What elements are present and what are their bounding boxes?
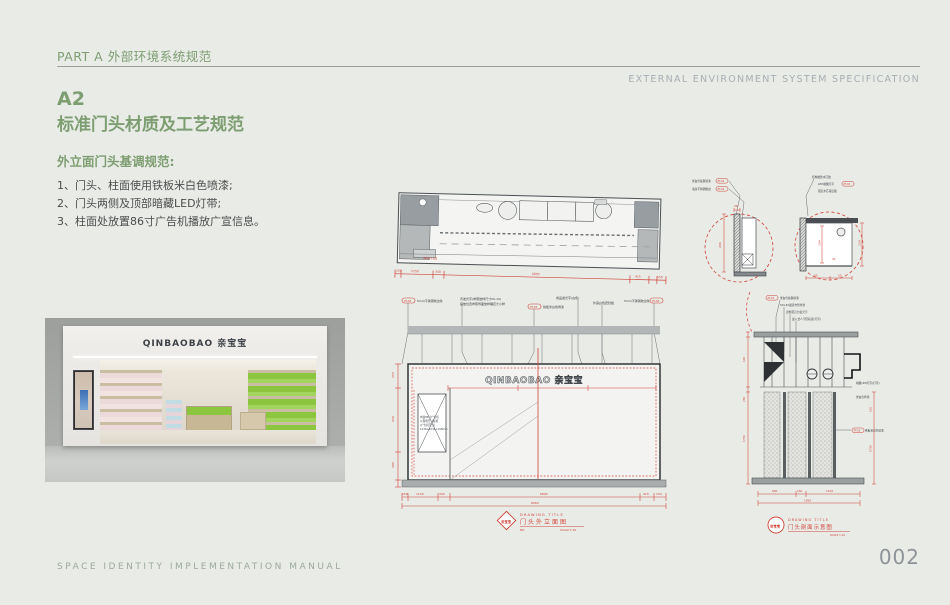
plan-dim: 340 <box>435 270 441 274</box>
annotation-label: 结构胶防水打胶 <box>812 175 831 179</box>
annotation-label: 摆放位置参照饰面放样确定大小样 <box>460 301 505 306</box>
elev-dim: 415 <box>643 492 649 496</box>
material-tag: PT-03 <box>718 188 725 191</box>
clothing-rack <box>166 400 182 430</box>
led-glow <box>73 356 317 358</box>
ad-note-line: (广告机尺寸) <box>420 423 435 427</box>
elev-dim: 250 <box>391 372 395 378</box>
section-brace <box>764 342 784 362</box>
plan-drawing: MW-100 150 1150 340 6805 415 150 <box>388 182 676 288</box>
annotation-label: 米白色氟碳喷漆 <box>692 179 711 183</box>
detail-dim: 200 <box>718 242 722 248</box>
detail-left-annotations: 米白色氟碳喷漆 PT-03 墙身不锈钢收边 PT-03 <box>692 179 744 219</box>
section-dim: 1750 <box>742 435 746 442</box>
annotation-label: LED暗藏灯带 <box>818 182 834 186</box>
drawing-title-en: DRAWING TITLE <box>520 513 564 517</box>
plan-dim: 6805 <box>532 272 540 276</box>
annotation-label: 暗藏LED灯带(灯带) <box>856 381 880 385</box>
annotation-label: 米白色烤漆 <box>856 395 870 399</box>
left-shelving <box>100 370 162 430</box>
drawing-no: NO. <box>520 528 525 532</box>
mall-floor <box>45 446 345 482</box>
material-tag: PT-03 <box>404 299 411 303</box>
annotation-label: 5mm不锈钢收边条 <box>417 298 443 303</box>
section-stone-columns <box>764 392 836 478</box>
section-right-annotations: 暗藏LED灯带(灯带) 米白色烤漆 PT-03 铁板米白色喷漆 <box>836 381 884 433</box>
drawing-title-cn: 门头剖面示意图 <box>788 523 833 531</box>
storefront-facade: QINBAOBAO 亲宝宝 <box>63 326 327 446</box>
material-tag: PT-03 <box>854 430 861 433</box>
spec-item: 2、门头两侧及顶部暗藏LED灯带; <box>57 195 265 213</box>
spec-list: 1、门头、柱面使用铁板米白色喷漆; 2、门头两侧及顶部暗藏LED灯带; 3、柱面… <box>57 177 265 231</box>
section-right-dims <box>872 392 876 484</box>
annotation-label: 米白色氟碳喷漆 <box>780 296 799 300</box>
manual-footer: SPACE IDENTITY IMPLEMENTATION MANUAL <box>57 562 343 572</box>
display-island <box>186 406 232 432</box>
interior-floor <box>100 430 316 444</box>
annotation-label: 固定木芯基层板 <box>818 189 837 193</box>
elevation-annotations: PT-03 5mm不锈钢收边条 背发光字(参照放样尺寸50-10) 摆放位置参照… <box>402 295 663 309</box>
elev-dim: 150 <box>402 492 408 496</box>
elev-dim: 1150 <box>416 492 424 496</box>
ad-screen <box>73 370 94 430</box>
corner-details: 米白色氟碳喷漆 PT-03 墙身不锈钢收边 PT-03 26 200 结构胶防水… <box>692 166 876 296</box>
annotation-label: 嵌入式人字形轨道(灯带) <box>792 317 821 321</box>
material-tag: PT-03 <box>718 180 725 183</box>
store-opening <box>100 360 316 444</box>
page-title: 标准门头材质及工艺规范 <box>57 110 244 135</box>
section-dim: 1100 <box>826 489 833 493</box>
elev-dim: 6805 <box>540 492 548 496</box>
elev-dim: 340 <box>439 492 445 496</box>
stamp-text: 亲宝宝 <box>501 519 512 524</box>
elevation-drawing: PT-03 5mm不锈钢收边条 背发光字(参照放样尺寸50-10) 摆放位置参照… <box>388 292 680 540</box>
manual-page: PART A 外部环境系统规范 EXTERNAL ENVIRONMENT SYS… <box>0 0 950 605</box>
plan-dim: 1150 <box>411 269 419 273</box>
section-base-plate <box>752 478 864 484</box>
section-title-block: 亲宝宝 DRAWING TITLE 门头剖面示意图 SCALE 1:10 <box>768 517 850 537</box>
brand-sign: QINBAOBAO 亲宝宝 <box>143 336 248 349</box>
annotation-label: 50×40镀锌方管骨架 <box>780 303 806 307</box>
annotation-label: 背发光字(参照放样尺寸50-10) <box>460 296 501 301</box>
section-dim: 250 <box>742 396 746 402</box>
section-dim: 150 <box>797 489 803 493</box>
detail-dim: 55 <box>838 274 842 278</box>
detail-link-dashed <box>746 292 752 332</box>
elevation-left-dims <box>395 364 401 487</box>
ad-note-line: 以现场尺寸复核 <box>420 419 439 423</box>
plan-dim: 150 <box>396 269 402 273</box>
ad-note-line: 1236×2234×108mm <box>420 427 448 431</box>
base-plinth <box>402 480 666 487</box>
material-tag: PT-03 <box>844 183 851 186</box>
plan-left-column <box>400 195 439 226</box>
annotation-label: 定制亚克力发光字 <box>786 310 808 314</box>
section-code: A2 <box>57 88 85 110</box>
detail-dim: 104 <box>818 240 822 246</box>
drawing-scale: SCALE 1:30 <box>560 528 576 532</box>
section-dim: 600 <box>772 489 778 493</box>
detail-right-annotations: 结构胶防水打胶 LED暗藏灯带 PT-03 固定木芯基层板 <box>806 175 854 216</box>
section-dim: 1750 <box>869 445 873 452</box>
canopy-band <box>408 326 660 334</box>
section-dim: 100 <box>742 356 746 362</box>
elevation-logo: QINBAOBAO 亲宝宝 <box>485 374 583 386</box>
plan-dim: 415 <box>635 275 641 279</box>
plan-right-column <box>634 202 659 229</box>
annotation-label: 5mm不锈钢收边条 <box>624 298 650 303</box>
page-number: 002 <box>879 545 920 569</box>
spec-item: 1、门头、柱面使用铁板米白色喷漆; <box>57 177 265 195</box>
annotation-label: 铁板米白色喷漆 <box>865 429 884 433</box>
drawing-scale: SCALE 1:10 <box>830 533 845 537</box>
section-top-plate <box>754 332 858 337</box>
material-tag: PT-03 <box>652 299 659 303</box>
annotation-label: 外露白色密封胶 <box>593 300 614 305</box>
elev-dim-total: 8960 <box>531 501 539 505</box>
part-label: PART A 外部环境系统规范 <box>57 46 212 65</box>
storefront-photo: QINBAOBAO 亲宝宝 <box>45 318 345 482</box>
intro-heading: 外立面门头基调规范: <box>57 151 175 170</box>
section-dim: 120 <box>869 406 873 412</box>
section-dim-total: 1950 <box>804 499 811 503</box>
detail-dim: 26 <box>734 204 738 208</box>
material-tag: PT-03 <box>768 297 775 300</box>
detail-dim: 120 <box>858 240 862 246</box>
detail-dim: 41 <box>832 257 836 261</box>
ad-screen-product <box>80 390 88 410</box>
spec-english-label: EXTERNAL ENVIRONMENT SYSTEM SPECIFICATIO… <box>628 74 920 85</box>
annotation-label: 铁板米白色烤漆 <box>543 304 564 309</box>
elev-dim: 640 <box>391 416 395 422</box>
ad-note-line: 内嵌86寸广告机 <box>420 415 439 419</box>
section-left-dims <box>746 332 750 484</box>
elev-dim: 280 <box>391 462 395 468</box>
stamp-text: 亲宝宝 <box>770 524 781 529</box>
annotation-label: 墙身不锈钢收边 <box>692 187 711 191</box>
section-angle-profile <box>844 354 860 378</box>
header-divider <box>57 66 920 67</box>
elevation-title-block: 亲宝宝 DRAWING TITLE 门头外立面图 NO. SCALE 1:30 <box>497 511 584 532</box>
ad-screen-content <box>75 372 92 428</box>
drawing-title-cn: 门头外立面图 <box>520 518 568 526</box>
spec-item: 3、柱面处放置86寸广告机播放广宣信息。 <box>57 213 265 231</box>
display-table <box>240 412 266 430</box>
plan-floor-note: MW-100 <box>423 256 437 260</box>
plan-dim: 150 <box>657 275 663 279</box>
elev-dim: 150 <box>656 492 662 496</box>
drawing-title-en: DRAWING TITLE <box>788 518 829 522</box>
material-tag: PT-03 <box>530 305 537 309</box>
signage-band: QINBAOBAO 亲宝宝 <box>63 326 327 358</box>
detail-dim: 65 <box>814 274 818 278</box>
annotation-label: 成品发光字(白色) <box>556 295 579 300</box>
section-drawing: PT-03 米白色氟碳喷漆 50×40镀锌方管骨架 定制亚克力发光字 嵌入式人字… <box>740 292 882 544</box>
